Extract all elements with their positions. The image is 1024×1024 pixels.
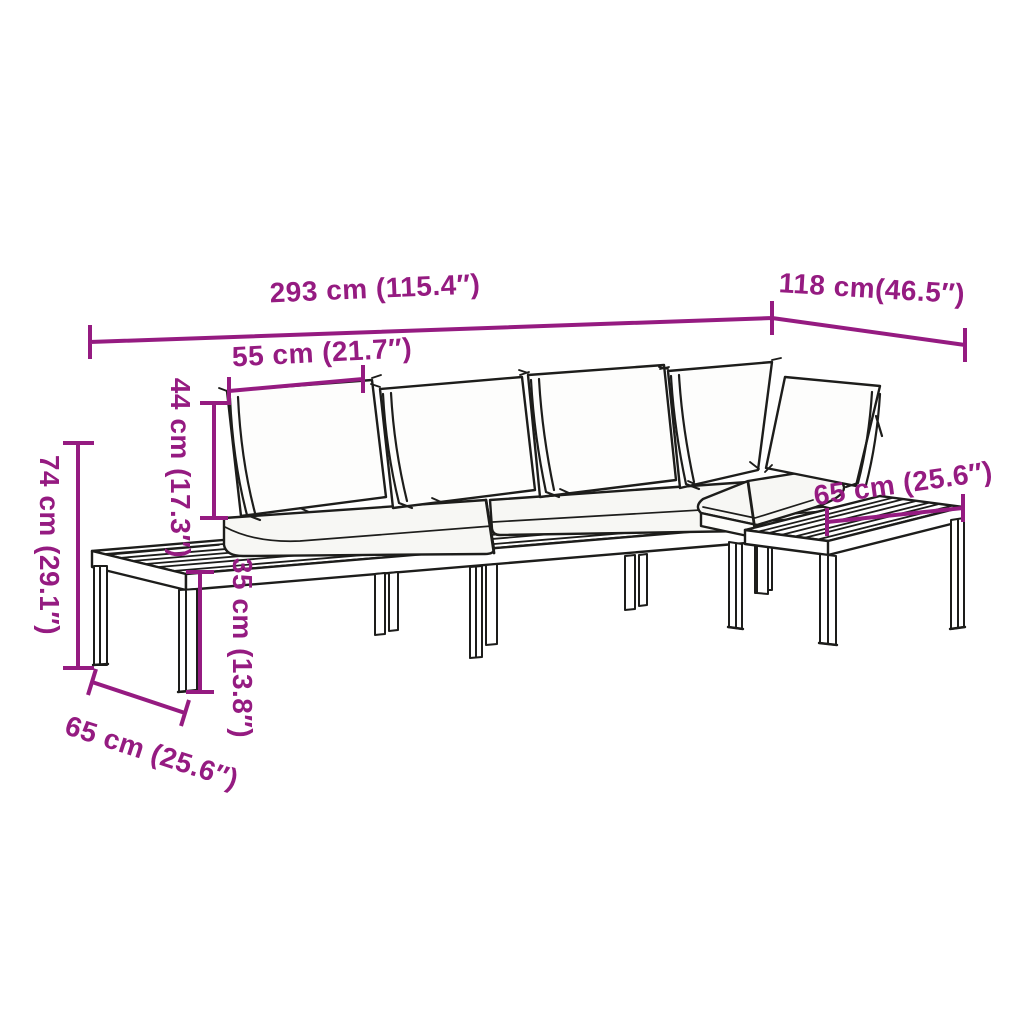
dim-left-table-depth: 65 cm (25.6″) xyxy=(61,669,242,795)
sofa-back-leg xyxy=(625,554,647,610)
dimension-label: 293 cm (115.4″) xyxy=(269,268,481,308)
back-cushion-3 xyxy=(528,365,676,497)
dimension-label: 55 cm (21.7″) xyxy=(231,332,413,372)
dim-total-height: 74 cm (29.1″) xyxy=(34,443,94,668)
dim-backrest-height: 44 cm (17.3″) xyxy=(165,378,228,558)
dimension-line xyxy=(88,669,189,726)
table-leg xyxy=(729,542,742,629)
diagram-svg: 293 cm (115.4″) 118 cm(46.5″) 55 cm (21.… xyxy=(0,0,1024,1024)
dimension-label: 65 cm (25.6″) xyxy=(61,710,242,795)
sofa-leg-pair xyxy=(375,572,398,635)
dimension-label: 74 cm (29.1″) xyxy=(34,455,65,635)
table-leg xyxy=(951,518,964,629)
dimension-line xyxy=(90,301,772,359)
sofa-leg-pair xyxy=(470,564,497,658)
dim-overall-width: 293 cm (115.4″) xyxy=(90,268,772,359)
dimension-label: 35 cm (13.8″) xyxy=(227,558,258,738)
dim-right-depth: 118 cm(46.5″) xyxy=(772,267,966,362)
dimension-label: 118 cm(46.5″) xyxy=(778,267,966,309)
leg-foot-line xyxy=(728,627,965,645)
furniture-drawing xyxy=(92,358,965,692)
product-dimension-diagram: 293 cm (115.4″) 118 cm(46.5″) 55 cm (21.… xyxy=(0,0,1024,1024)
right-table-back-legs xyxy=(757,545,768,594)
table-leg xyxy=(94,566,107,665)
table-leg xyxy=(179,589,197,692)
table-leg xyxy=(820,554,836,645)
dimension-label: 44 cm (17.3″) xyxy=(165,378,196,558)
dimension-line xyxy=(772,318,965,362)
corner-back-cushion xyxy=(766,377,880,486)
dimension-line xyxy=(200,403,228,518)
dimension-line xyxy=(63,443,94,668)
